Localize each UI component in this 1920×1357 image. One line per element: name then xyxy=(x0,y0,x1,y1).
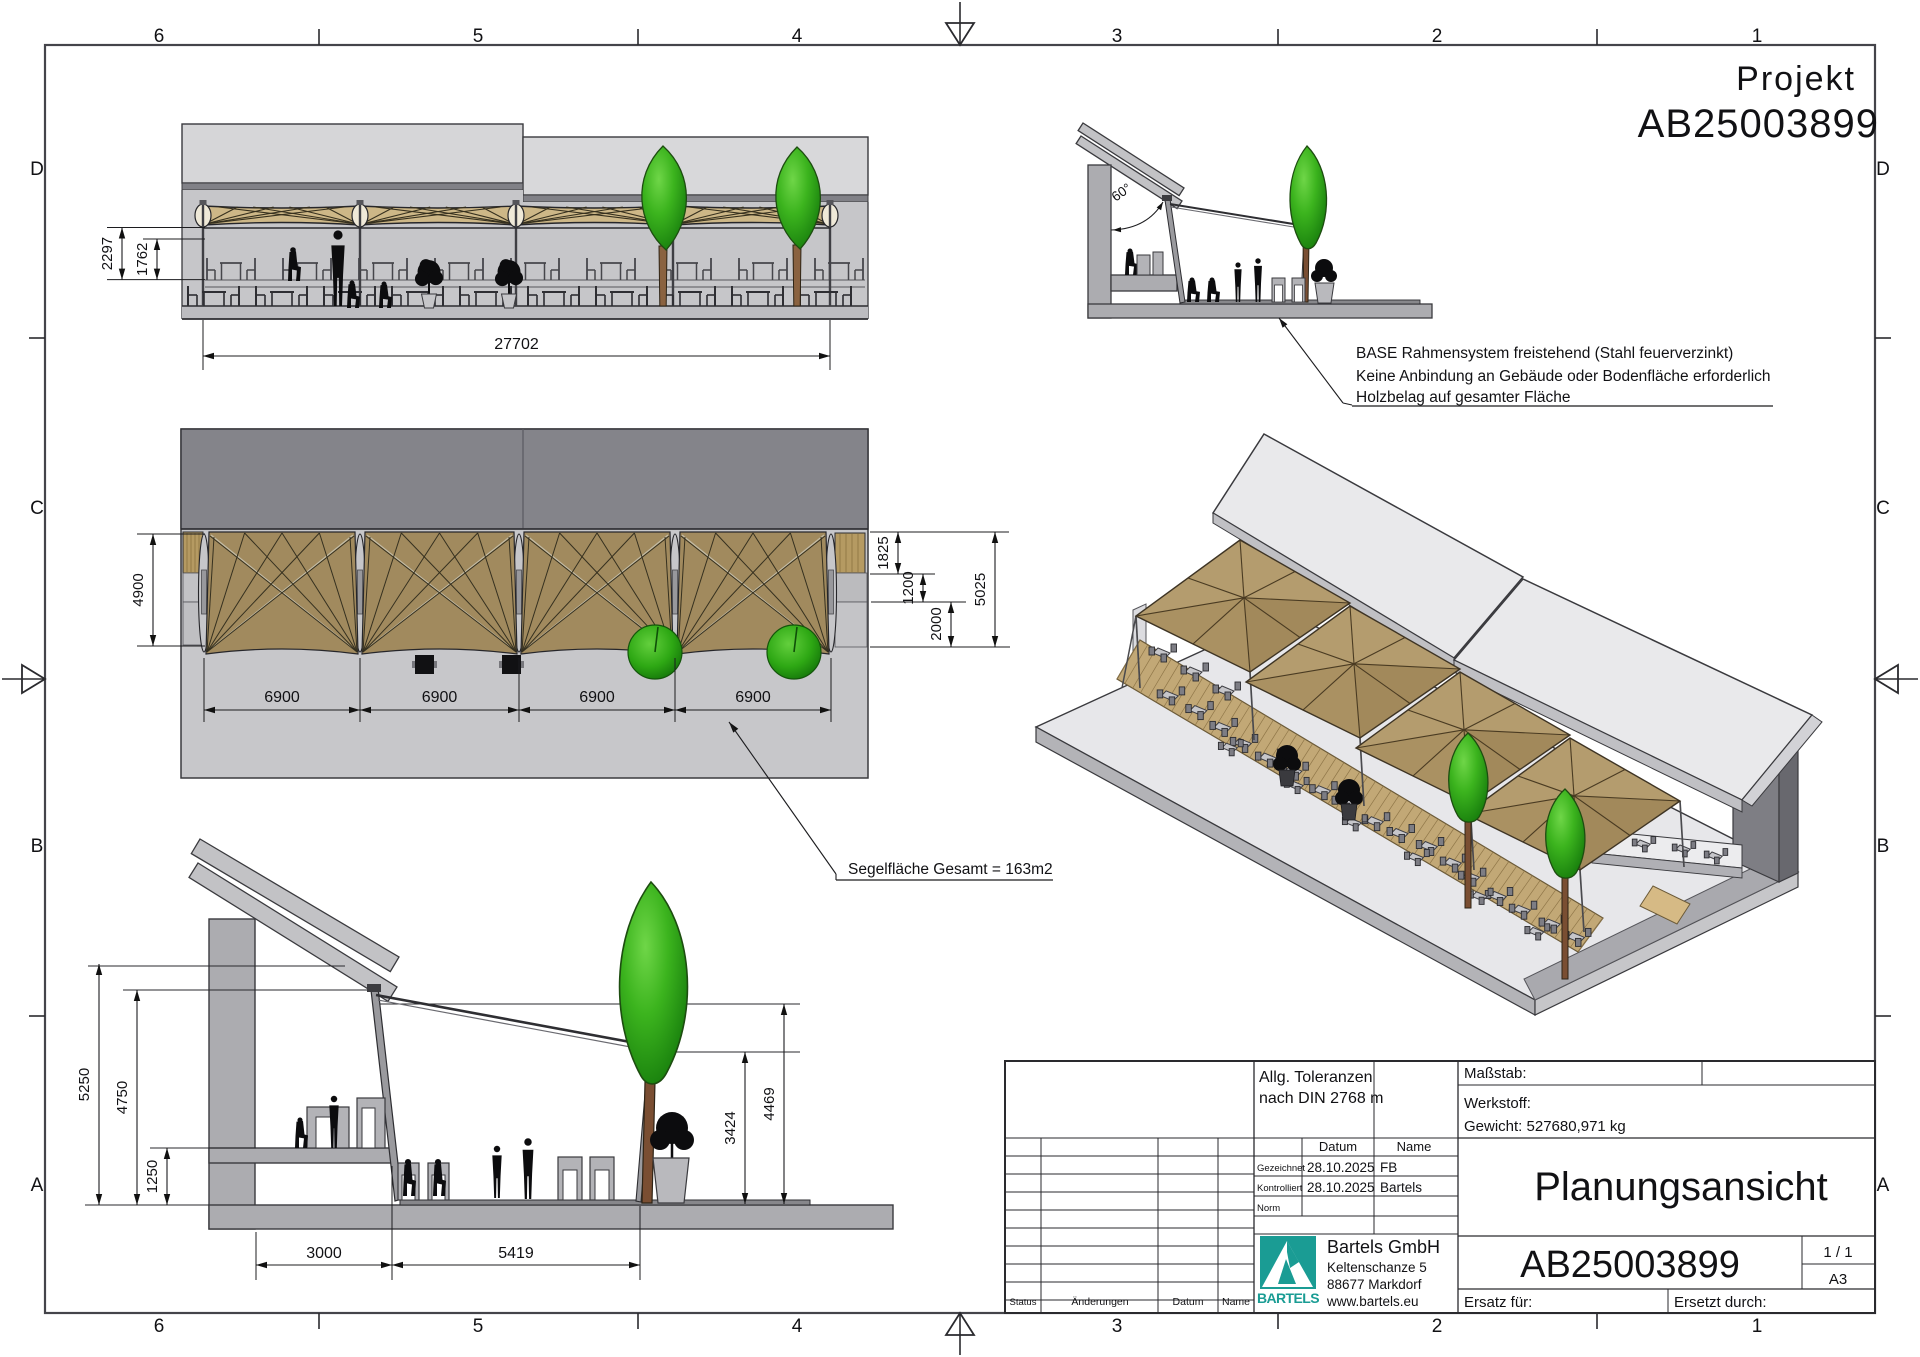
svg-text:2: 2 xyxy=(1432,26,1443,47)
svg-text:4900: 4900 xyxy=(130,573,147,606)
svg-text:4: 4 xyxy=(792,26,803,47)
svg-text:A: A xyxy=(1877,1175,1890,1196)
svg-text:1825: 1825 xyxy=(875,536,892,569)
svg-text:Keine Anbindung an Gebäude ode: Keine Anbindung an Gebäude oder Bodenflä… xyxy=(1356,368,1771,385)
svg-text:88677 Markdorf: 88677 Markdorf xyxy=(1327,1277,1422,1292)
svg-text:Projekt: Projekt xyxy=(1736,60,1856,98)
svg-text:3: 3 xyxy=(1112,1316,1123,1337)
svg-text:BASE Rahmensystem freistehend: BASE Rahmensystem freistehend (Stahl feu… xyxy=(1356,345,1733,362)
svg-text:D: D xyxy=(30,159,44,180)
svg-text:60°: 60° xyxy=(1109,180,1134,204)
svg-text:nach DIN 2768 m: nach DIN 2768 m xyxy=(1259,1090,1384,1107)
svg-text:BARTELS: BARTELS xyxy=(1257,1290,1319,1306)
svg-text:6900: 6900 xyxy=(422,689,458,706)
svg-text:1 / 1: 1 / 1 xyxy=(1823,1244,1852,1261)
svg-text:27702: 27702 xyxy=(494,336,539,353)
svg-text:6900: 6900 xyxy=(735,689,771,706)
svg-text:5: 5 xyxy=(473,26,484,47)
svg-text:3424: 3424 xyxy=(722,1111,739,1144)
svg-text:Kontrolliert: Kontrolliert xyxy=(1257,1183,1303,1194)
svg-text:B: B xyxy=(31,836,44,857)
svg-text:Name: Name xyxy=(1397,1139,1432,1154)
svg-text:Ersatz für:: Ersatz für: xyxy=(1464,1294,1532,1311)
svg-text:3000: 3000 xyxy=(306,1245,342,1262)
svg-text:Ersetzt durch:: Ersetzt durch: xyxy=(1674,1294,1767,1311)
svg-text:4469: 4469 xyxy=(761,1087,778,1120)
svg-text:5: 5 xyxy=(473,1316,484,1337)
svg-text:6900: 6900 xyxy=(579,689,615,706)
svg-text:A: A xyxy=(31,1175,44,1196)
svg-text:A3: A3 xyxy=(1829,1271,1847,1288)
svg-text:B: B xyxy=(1877,836,1890,857)
svg-text:AB25003899: AB25003899 xyxy=(1638,102,1879,146)
svg-text:D: D xyxy=(1876,159,1890,180)
svg-text:C: C xyxy=(30,498,44,519)
svg-text:5025: 5025 xyxy=(972,573,989,606)
svg-text:Allg. Toleranzen: Allg. Toleranzen xyxy=(1259,1069,1373,1086)
svg-text:AB25003899: AB25003899 xyxy=(1520,1244,1740,1286)
svg-text:FB: FB xyxy=(1380,1160,1397,1175)
svg-text:1762: 1762 xyxy=(134,243,151,276)
svg-text:Gezeichnet: Gezeichnet xyxy=(1257,1163,1305,1174)
svg-text:3: 3 xyxy=(1112,26,1123,47)
svg-text:6: 6 xyxy=(154,26,165,47)
svg-text:Maßstab:: Maßstab: xyxy=(1464,1065,1527,1082)
svg-text:2000: 2000 xyxy=(928,607,945,640)
svg-text:Bartels: Bartels xyxy=(1380,1180,1422,1195)
svg-text:Datum: Datum xyxy=(1173,1296,1204,1308)
svg-text:1250: 1250 xyxy=(144,1160,161,1193)
svg-text:Name: Name xyxy=(1222,1296,1250,1308)
svg-text:2: 2 xyxy=(1432,1316,1443,1337)
svg-text:Bartels GmbH: Bartels GmbH xyxy=(1327,1237,1440,1257)
svg-text:Planungsansicht: Planungsansicht xyxy=(1534,1165,1828,1209)
svg-text:2297: 2297 xyxy=(99,237,116,270)
svg-text:5419: 5419 xyxy=(498,1245,534,1262)
svg-text:6900: 6900 xyxy=(264,689,300,706)
svg-text:Holzbelag auf gesamter Fläche: Holzbelag auf gesamter Fläche xyxy=(1356,389,1571,406)
svg-text:4: 4 xyxy=(792,1316,803,1337)
svg-text:28.10.2025: 28.10.2025 xyxy=(1307,1180,1375,1195)
svg-text:Werkstoff:: Werkstoff: xyxy=(1464,1095,1531,1112)
svg-text:Segelfläche Gesamt = 163m2: Segelfläche Gesamt = 163m2 xyxy=(848,861,1053,878)
svg-text:1: 1 xyxy=(1752,26,1763,47)
svg-text:Status: Status xyxy=(1010,1297,1037,1308)
svg-text:Norm: Norm xyxy=(1257,1203,1280,1214)
svg-text:C: C xyxy=(1876,498,1890,519)
svg-text:Änderungen: Änderungen xyxy=(1071,1296,1128,1308)
svg-text:Gewicht: 527680,971 kg: Gewicht: 527680,971 kg xyxy=(1464,1118,1626,1135)
svg-text:1: 1 xyxy=(1752,1316,1763,1337)
svg-text:Datum: Datum xyxy=(1319,1139,1357,1154)
svg-text:www.bartels.eu: www.bartels.eu xyxy=(1326,1294,1419,1309)
svg-text:Keltenschanze 5: Keltenschanze 5 xyxy=(1327,1260,1427,1275)
svg-text:4750: 4750 xyxy=(114,1081,131,1114)
svg-text:1200: 1200 xyxy=(900,571,917,604)
svg-text:28.10.2025: 28.10.2025 xyxy=(1307,1160,1375,1175)
svg-text:5250: 5250 xyxy=(76,1068,93,1101)
svg-text:6: 6 xyxy=(154,1316,165,1337)
